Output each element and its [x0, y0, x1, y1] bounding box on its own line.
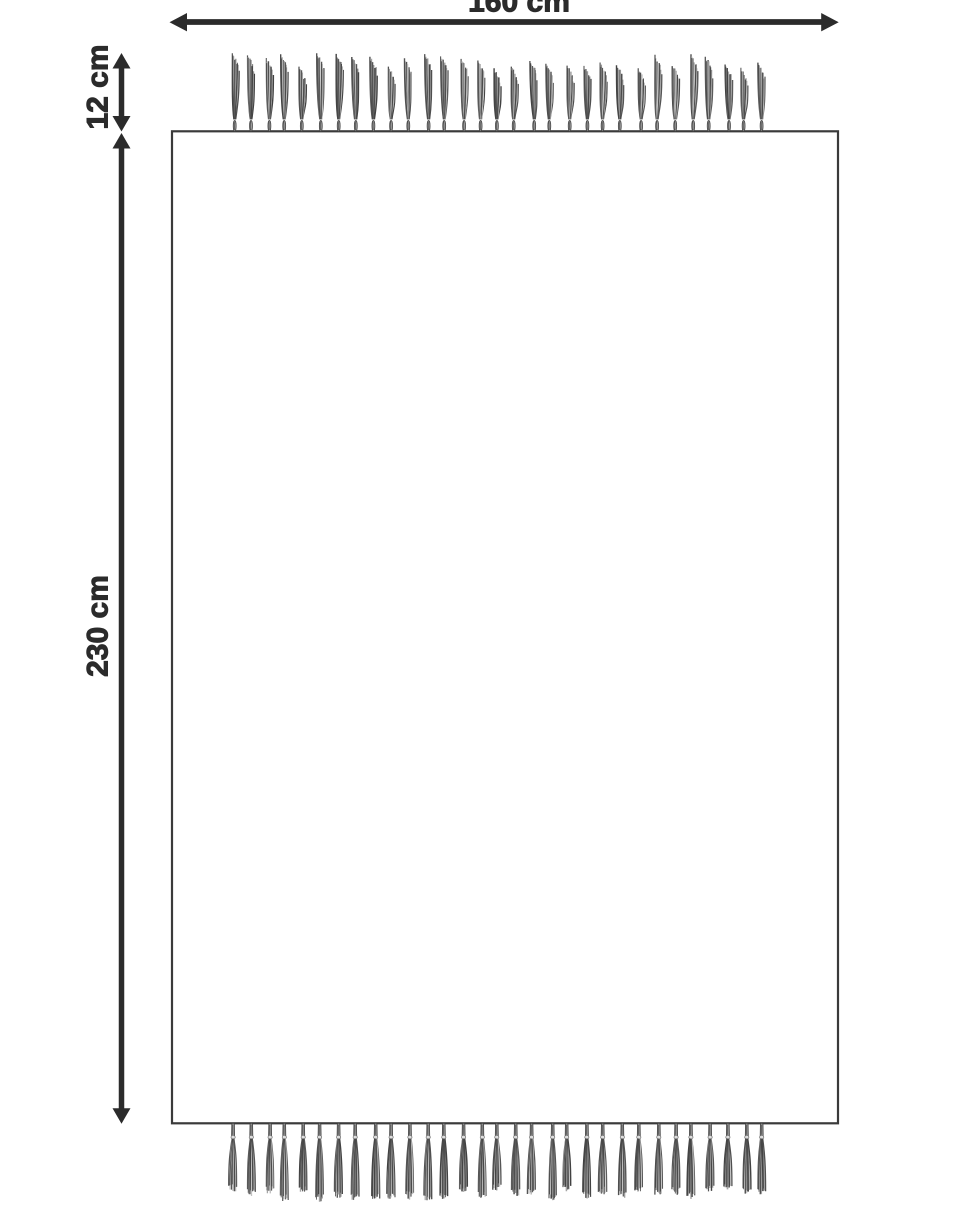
svg-text:230 cm: 230 cm [82, 575, 115, 677]
svg-text:160 cm: 160 cm [468, 0, 570, 19]
svg-text:12 cm: 12 cm [82, 44, 115, 129]
